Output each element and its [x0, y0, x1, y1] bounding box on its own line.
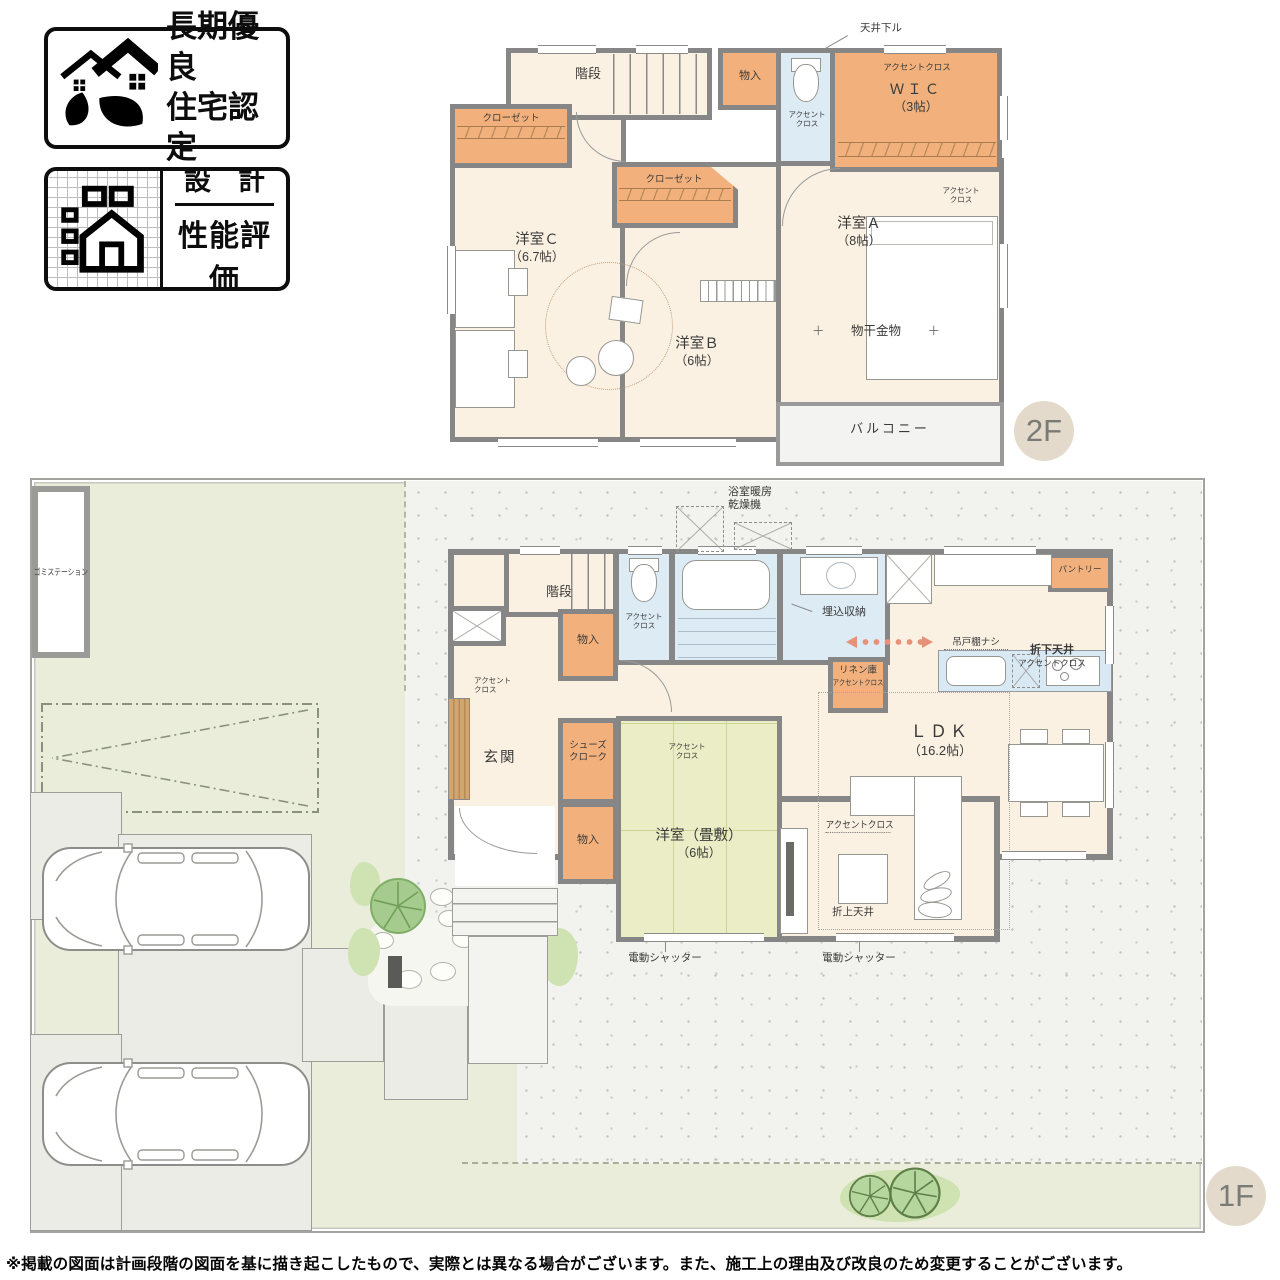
toilet-1f-accent-label: アクセントクロス	[617, 612, 671, 630]
tv-panel-icon	[786, 842, 794, 916]
stepping-stone	[430, 888, 454, 906]
window	[498, 438, 598, 447]
tatami-accent-label: アクセントクロス	[658, 742, 716, 760]
tatami-room-label: 洋室（畳敷）（6帖）	[622, 828, 776, 861]
linen-accent-label: アクセントクロス	[831, 678, 885, 687]
window	[640, 438, 736, 447]
window	[884, 45, 946, 54]
flow-arrow-dots	[860, 636, 922, 648]
window	[1002, 851, 1086, 860]
window	[999, 96, 1008, 140]
window	[806, 546, 862, 555]
dining-chair-icon	[1062, 802, 1090, 817]
recessed-storage-label: 埋込収納	[810, 606, 878, 619]
tree-icon	[886, 1164, 944, 1222]
toilet-seat-2f-icon	[793, 64, 819, 102]
window	[1105, 606, 1114, 664]
storage-1f-hall-label: 物入	[562, 634, 614, 647]
closet-c-rod	[457, 126, 565, 139]
stairs-2f-label: 階段	[556, 66, 620, 82]
dining-chair-icon	[1062, 729, 1090, 744]
wic-accent-label: アクセントクロス	[842, 62, 992, 72]
chair-1-icon	[508, 268, 528, 296]
toilet-2f-accent-label: アクセントクロス	[781, 110, 833, 128]
wic-rod	[838, 142, 996, 157]
room-a-label: 洋室Ａ（8帖）	[784, 216, 934, 249]
linen-label: リネン庫	[830, 665, 886, 677]
storage-2f-label: 物入	[720, 70, 780, 83]
stair-treads-2f	[598, 54, 706, 114]
window	[628, 546, 662, 555]
disclaimer-text: ※掲載の図面は計画段階の図面を基に描き起こしたもので、実際とは異なる場合がござい…	[6, 1252, 1278, 1274]
toy-book-icon	[608, 296, 643, 324]
window	[636, 45, 688, 54]
garbage-station-label: ゴミステーション	[34, 566, 88, 578]
raised-ceiling-label: 折上天井	[820, 906, 886, 919]
floor1-badge: 1F	[1206, 1166, 1266, 1226]
bathtub-icon	[682, 560, 770, 610]
window	[538, 45, 596, 54]
dropped-ceiling-label: 折下天井	[1014, 644, 1090, 657]
site-dashed-line-horizontal	[462, 1162, 1202, 1164]
cupboard-icon	[934, 554, 1052, 586]
shutter-tick	[859, 941, 860, 952]
balcony-label: バルコニー	[778, 421, 1002, 437]
bookshelf-icon	[700, 280, 776, 302]
dropped-ceiling-accent-label: アクセントクロス	[1008, 658, 1096, 668]
entrance-porch	[452, 888, 558, 936]
stair-treads-1f	[556, 554, 613, 612]
pantry-label: パントリー	[1050, 564, 1110, 574]
flow-arrow-left-head	[846, 636, 857, 648]
shutter-tick	[665, 941, 666, 952]
window	[447, 246, 456, 314]
exterior-storage	[448, 606, 506, 646]
site-dashed-line-vertical	[404, 481, 406, 691]
window	[520, 546, 560, 555]
dining-chair-icon	[1020, 729, 1048, 744]
entrance-wood-wall	[448, 698, 470, 800]
hall-accent-label: アクセントクロス	[474, 676, 528, 694]
tree-icon	[366, 874, 430, 938]
bath-heater-label: 浴室暖房乾燥機	[728, 486, 812, 513]
closet-b-rod	[619, 188, 731, 201]
stepping-stone	[430, 962, 456, 981]
shutter-label: 電動シャッター	[806, 952, 912, 965]
wic-label: ＷＩＣ	[858, 82, 974, 100]
flow-arrow-right-head	[922, 636, 933, 648]
car-icon	[40, 843, 312, 955]
floor2-plan: 階段 物入 アクセントクロス ＷＩＣ （3帖） クローゼット クローゼット アク…	[0, 0, 1280, 470]
room-a-accent-label: アクセントクロス	[934, 186, 988, 204]
chair-2-icon	[508, 350, 528, 378]
dining-chair-icon	[1020, 802, 1048, 817]
no-cabinet-label: 吊戸棚ナシ	[944, 637, 1008, 650]
garbage-station: ゴミステーション	[32, 486, 90, 658]
shutter-window	[644, 933, 764, 942]
shutter-window	[836, 933, 954, 942]
refrigerator-space-icon	[886, 554, 932, 604]
room-b-label: 洋室Ｂ（6帖）	[622, 336, 772, 369]
car-icon	[40, 1058, 312, 1170]
shoe-cloak-label: シューズクローク	[560, 740, 616, 763]
vanity-bowl-icon	[826, 562, 856, 589]
desk-2-icon	[455, 330, 515, 408]
bath-heater-box	[734, 522, 792, 550]
floor2-badge: 2F	[1014, 401, 1074, 461]
wic-size-label: （3帖）	[858, 100, 974, 115]
laundry-hardware-label: ＋ 物干金物 ＋	[812, 324, 940, 339]
dining-table-icon	[1008, 744, 1104, 802]
gate-post	[388, 956, 402, 988]
room-c-label: 洋室Ｃ（6.7帖）	[462, 232, 612, 265]
window	[944, 546, 1036, 555]
kitchen-sink-icon	[946, 656, 1006, 686]
ceiling-drop-label: 天井下ル	[845, 22, 917, 35]
bath-washplace-lines	[678, 618, 776, 658]
tv-board-icon	[780, 828, 808, 934]
toilet-seat-1f-icon	[631, 564, 657, 602]
window	[999, 244, 1008, 308]
storage-1f-tatami-label: 物入	[562, 834, 614, 847]
porch-step-pad	[468, 936, 548, 1064]
ldk-label: ＬＤＫ（16.2帖）	[878, 722, 1002, 759]
genkan-label: 玄関	[468, 750, 532, 768]
shutter-label: 電動シャッター	[612, 952, 718, 965]
floorplan-canvas: 長期優良 住宅認定 設 計 性能評価	[0, 0, 1280, 1280]
stairs-1f-label: 階段	[524, 584, 594, 600]
window	[1105, 742, 1114, 808]
closet-c-label: クローゼット	[457, 113, 565, 125]
closet-b-label: クローゼット	[620, 174, 728, 186]
bath-heater-box	[676, 506, 724, 552]
toy-circle-2-icon	[566, 356, 596, 386]
ldk-accent-label: アクセントクロス	[826, 820, 891, 833]
stove-burner-icon	[1060, 672, 1069, 681]
